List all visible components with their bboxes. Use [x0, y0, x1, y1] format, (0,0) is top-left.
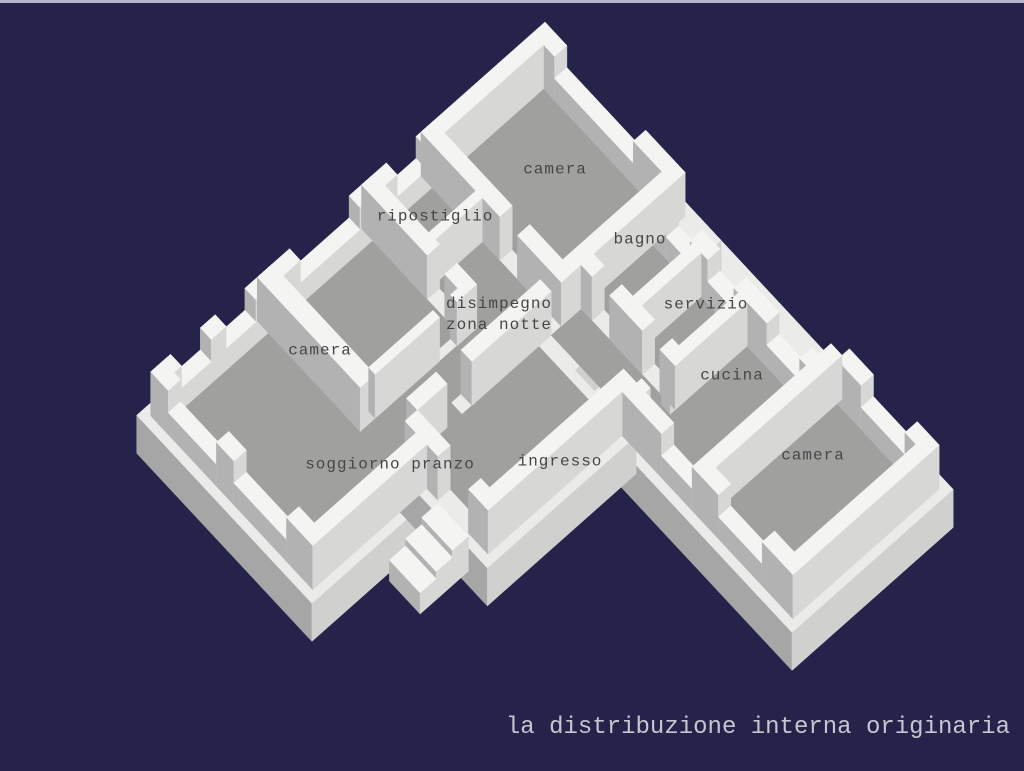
- top-border-line: [0, 0, 1024, 3]
- canvas: cameraripostigliobagnoserviziodisimpegno…: [0, 0, 1024, 771]
- caption: la distribuzione interna originaria: [506, 714, 1010, 743]
- floorplan-3d-view: [0, 0, 1024, 771]
